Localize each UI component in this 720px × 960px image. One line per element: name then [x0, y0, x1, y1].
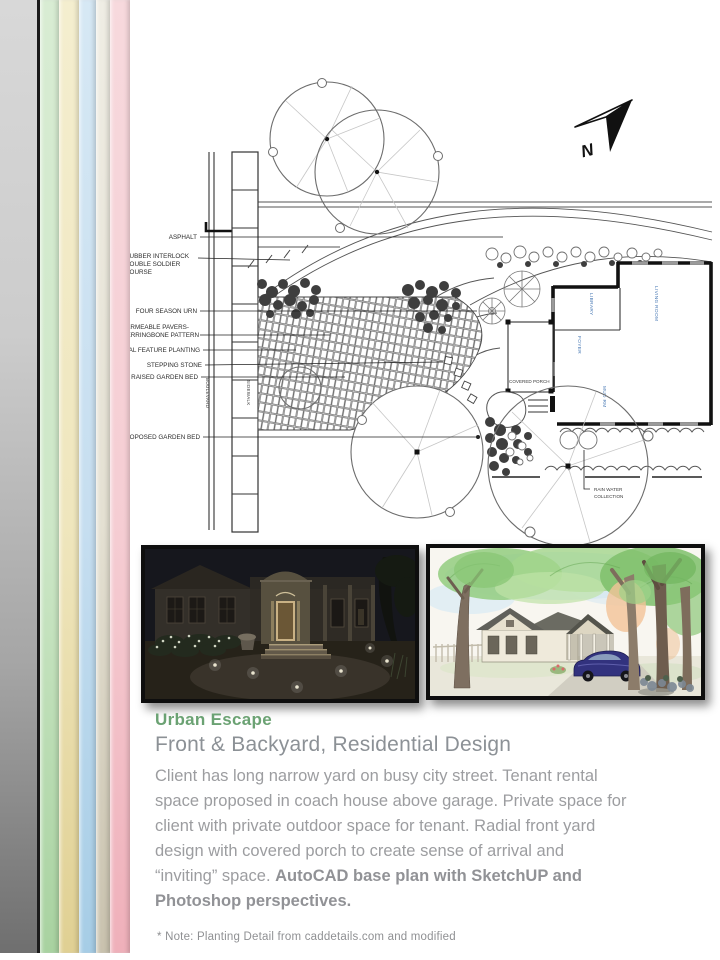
- stripe-green: [40, 0, 59, 953]
- stripe-blue: [79, 0, 96, 953]
- project-description: Client has long narrow yard on busy city…: [155, 764, 627, 914]
- room-label-foyer: FOYER: [576, 336, 582, 354]
- label-rainwater-2: COLLECTION: [594, 494, 623, 499]
- label-asphalt: ASPHALT: [169, 234, 197, 241]
- site-plan-drawing: BOULEVARD SIDEWALK: [130, 48, 715, 548]
- project-title: Urban Escape: [155, 710, 627, 730]
- left-stripe-band: [0, 0, 130, 953]
- project-subtitle: Front & Backyard, Residential Design: [155, 733, 627, 757]
- boulevard-label: BOULEVARD: [205, 378, 210, 408]
- north-arrow: N: [575, 100, 632, 161]
- label-rubber-2: DOUBLE SOLDIER: [130, 261, 181, 268]
- sidewalk-label: SIDEWALK: [246, 380, 251, 406]
- garden-beds: [492, 428, 704, 477]
- room-label-mudrm: MUD RM: [601, 386, 607, 408]
- label-permeable-1: PERMEABLE PAVERS-: [130, 324, 189, 331]
- tree-canopy-c: [351, 386, 483, 518]
- label-rubber-1: RUBBER INTERLOCK: [130, 253, 190, 260]
- stripe-beige: [96, 0, 110, 953]
- footnote: * Note: Planting Detail from caddetails.…: [157, 931, 627, 943]
- house-plan: LIBRARY LIVING ROOM FOYER MUD RM COVERED…: [487, 261, 711, 427]
- stripe-cream: [59, 0, 79, 953]
- label-local-feature: LOCAL FEATURE PLANTING: [130, 347, 200, 354]
- label-stepping-stone: STEPPING STONE: [147, 362, 202, 369]
- label-rubber-3: COURSE: [130, 269, 152, 276]
- watercolor-render-image: [426, 544, 705, 700]
- label-rainwater-1: RAIN WATER: [594, 487, 623, 492]
- room-label-library: LIBRARY: [588, 293, 594, 316]
- room-label-living: LIVING ROOM: [653, 286, 659, 321]
- label-proposed-bed: PROPOSED GARDEN BED: [130, 434, 200, 441]
- north-letter: N: [579, 140, 596, 162]
- stripe-gray: [0, 0, 37, 953]
- covered-porch-label: COVERED PORCH: [509, 379, 550, 384]
- tree-canopy-b: [315, 110, 443, 234]
- label-urn: FOUR SEASON URN: [136, 308, 198, 315]
- portfolio-page: BOULEVARD SIDEWALK: [0, 0, 720, 960]
- label-permeable-2: HERRINGBONE PATTERN: [130, 332, 200, 339]
- night-render-image: [141, 545, 419, 703]
- stripe-pink: [110, 0, 130, 953]
- project-text-block: Urban Escape Front & Backyard, Residenti…: [155, 710, 627, 943]
- label-raised-bed: RAISED GARDEN BED: [131, 374, 198, 381]
